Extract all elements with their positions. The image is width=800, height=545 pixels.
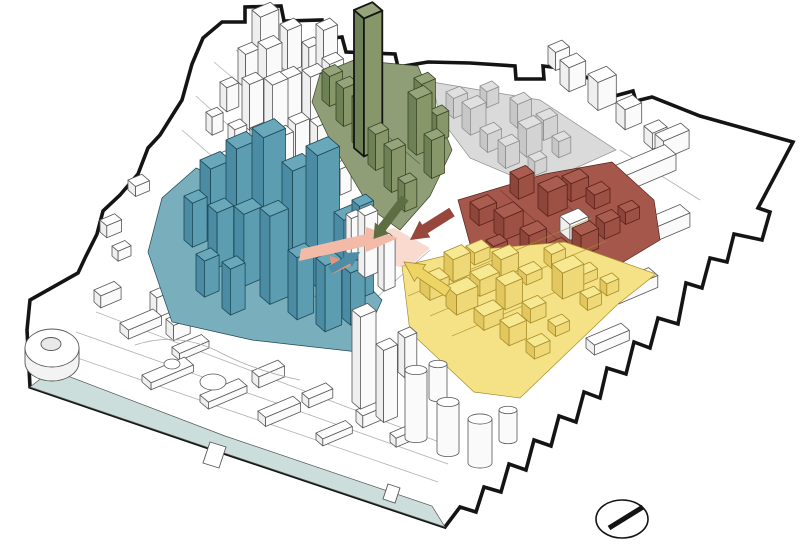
- building-box: [616, 95, 642, 130]
- round-building: [25, 329, 79, 381]
- building-box: [588, 66, 616, 110]
- building-box: [352, 303, 376, 409]
- urban-massing-diagram: [0, 0, 800, 545]
- cylinder-tower: [468, 414, 492, 468]
- building-box: [196, 248, 219, 297]
- building-box: [242, 72, 263, 130]
- building-box: [510, 165, 534, 199]
- building-box: [538, 176, 567, 217]
- building-box: [184, 190, 207, 247]
- cylinder-tower: [429, 360, 447, 402]
- building-box: [552, 255, 584, 299]
- building-box: [496, 271, 523, 310]
- building-box: [222, 256, 245, 315]
- building-box: [280, 18, 301, 72]
- park-pond: [164, 359, 180, 369]
- building-box: [376, 338, 397, 422]
- building-box: [206, 107, 223, 135]
- building-box: [260, 200, 288, 304]
- building-box: [220, 77, 239, 112]
- cylinder-tower: [437, 397, 459, 456]
- building-box: [498, 134, 519, 168]
- compass-icon: [596, 500, 648, 538]
- building-box: [560, 53, 586, 92]
- building-box: [424, 129, 445, 179]
- building-box: [518, 115, 542, 157]
- diagram-canvas: [0, 0, 800, 545]
- park-pond: [200, 374, 226, 390]
- cylinder-tower: [499, 406, 517, 444]
- building-box: [552, 131, 571, 158]
- cylinder-tower: [405, 365, 427, 442]
